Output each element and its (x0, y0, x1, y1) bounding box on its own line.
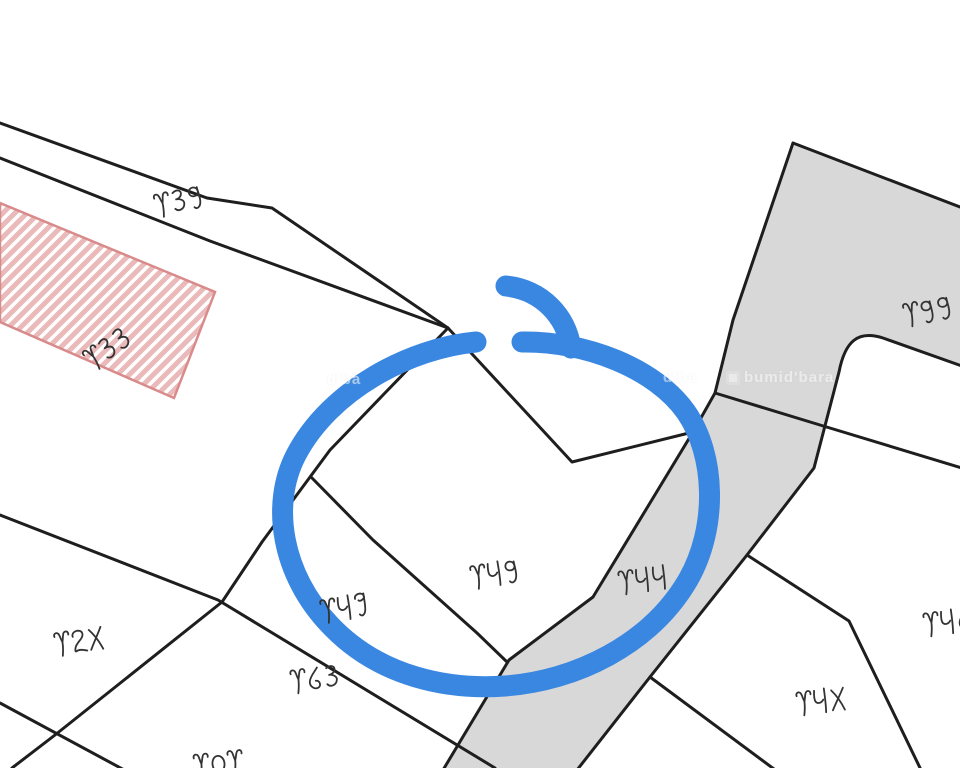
hatched-parcel (0, 203, 215, 398)
site-watermark: d'ba (663, 369, 697, 386)
site-watermark: bumid'bara (726, 369, 834, 386)
site-watermark: d'ba (327, 371, 361, 388)
watermark-text: d'ba (663, 369, 697, 386)
watermark-text: d'ba (327, 371, 361, 388)
watermark-logo-icon (726, 371, 740, 385)
watermark-text: bumid'bara (744, 369, 834, 386)
cadastral-map-screenshot: d'bad'babumid'bara (0, 0, 960, 768)
highlight-circle-annotation (283, 286, 710, 687)
